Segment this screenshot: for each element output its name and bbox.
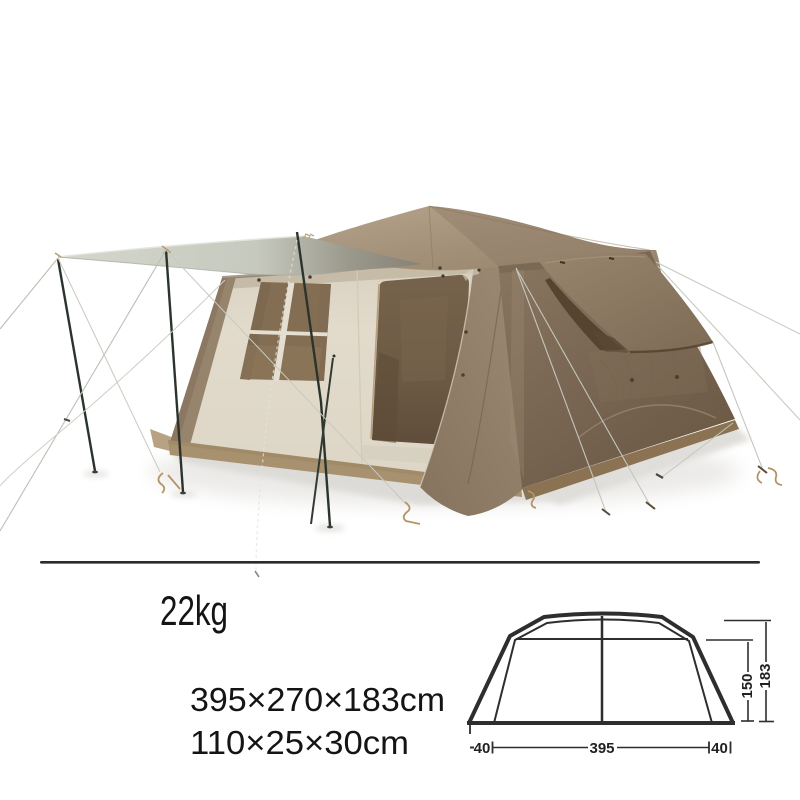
svg-text:40: 40	[711, 740, 728, 757]
svg-text:395×270×183cm: 395×270×183cm	[190, 681, 445, 718]
svg-text:40: 40	[474, 740, 491, 757]
svg-text:395: 395	[589, 740, 614, 757]
svg-text:150: 150	[739, 673, 756, 698]
svg-text:183: 183	[757, 663, 774, 688]
svg-text:110×25×30cm: 110×25×30cm	[190, 724, 409, 761]
svg-text:22kg: 22kg	[160, 587, 228, 634]
